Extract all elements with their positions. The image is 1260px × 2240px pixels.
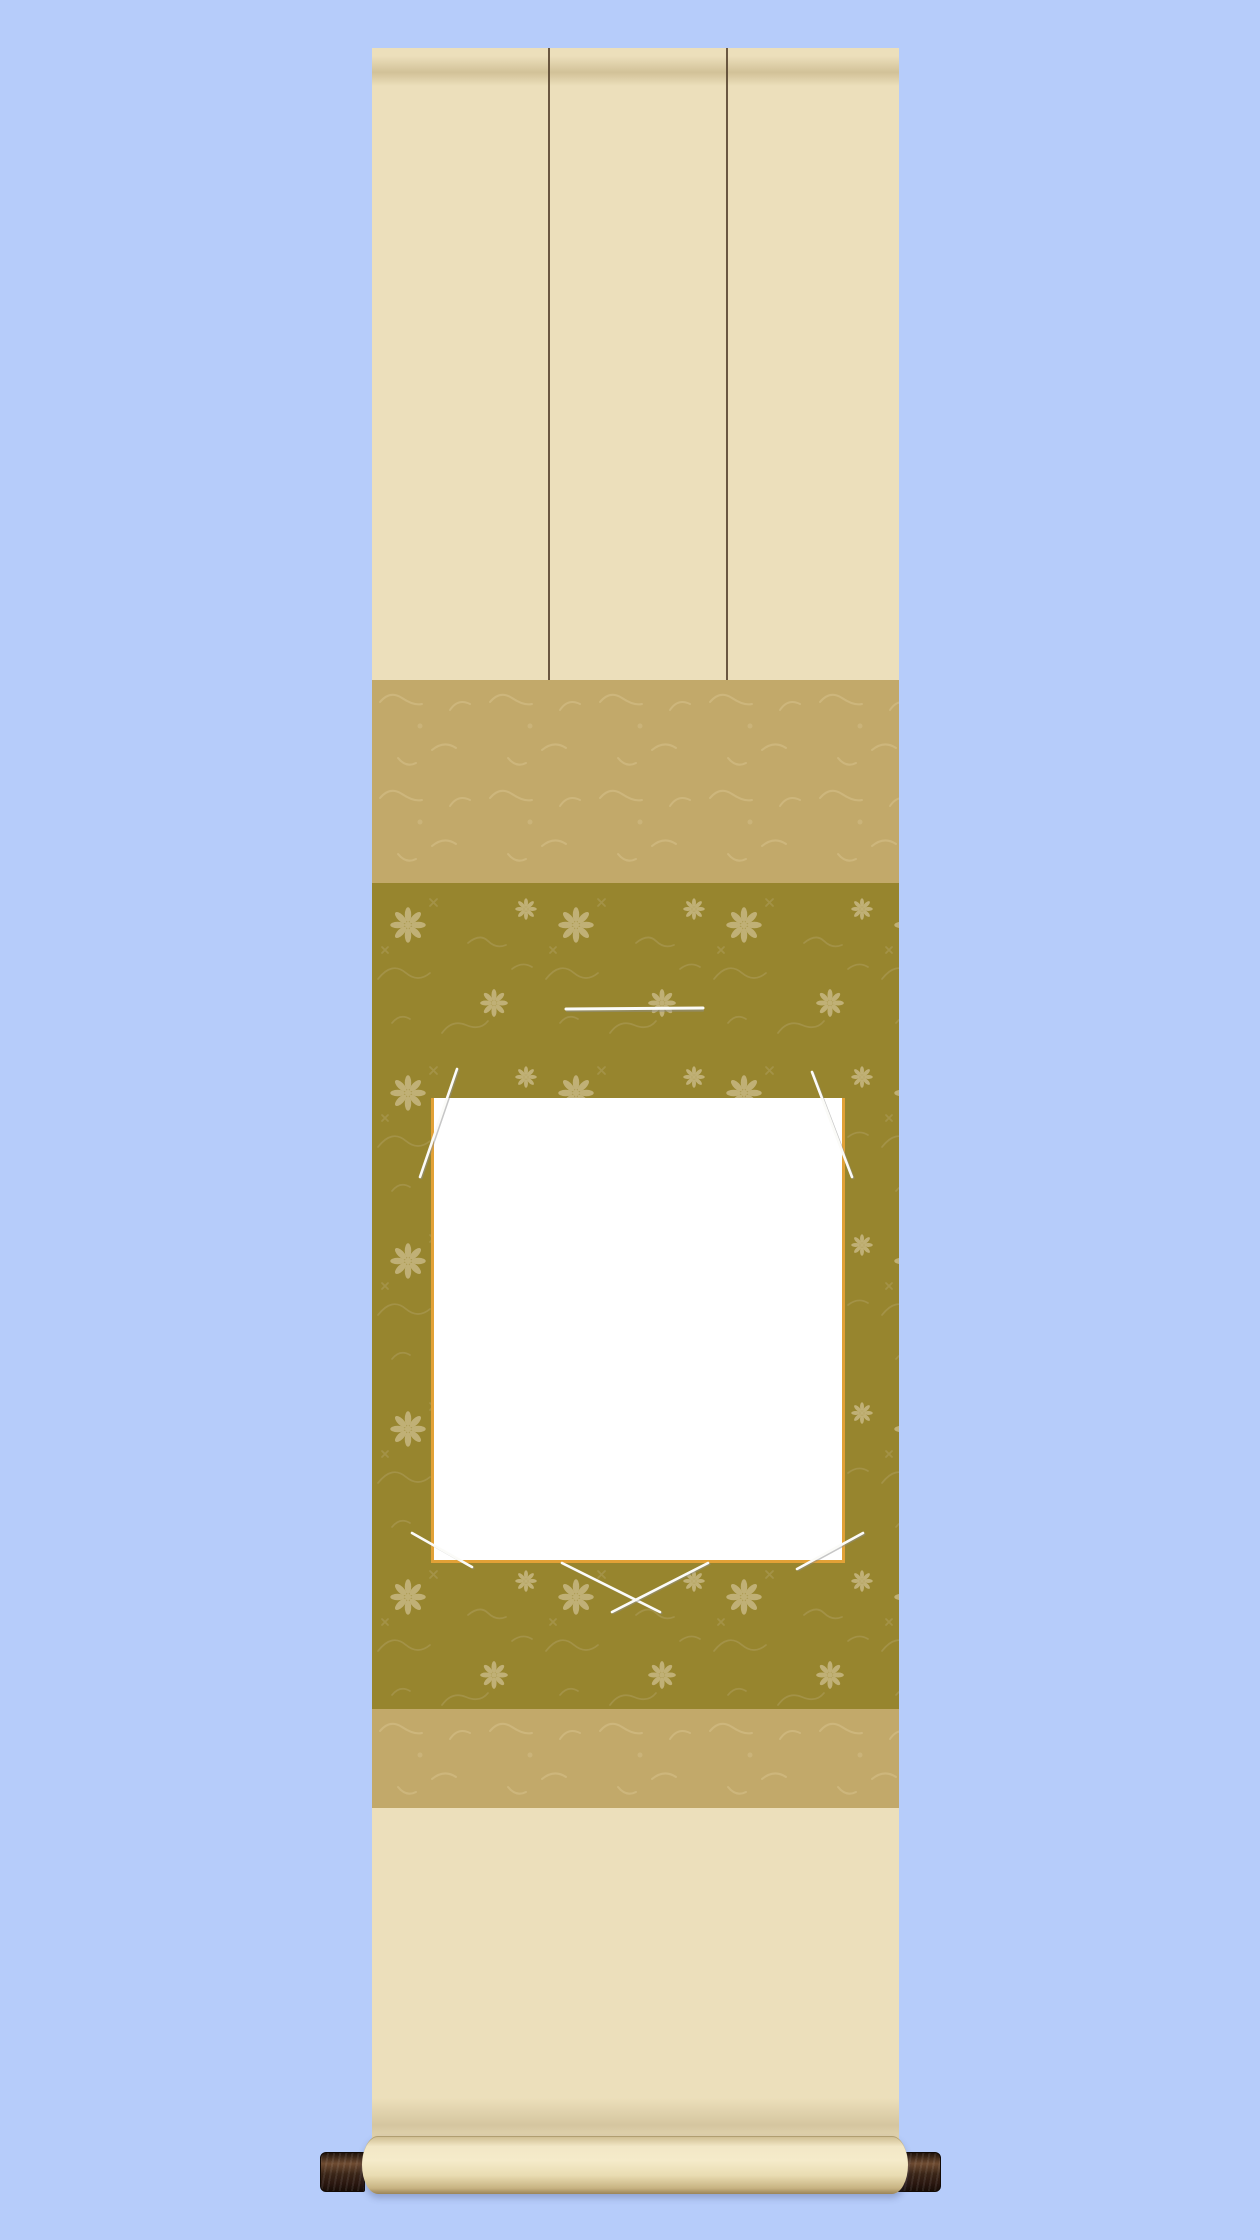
upper-band-texture xyxy=(372,680,899,883)
futai-strip-line-right xyxy=(726,48,728,680)
hanging-rod-shadow xyxy=(372,56,899,86)
scroll-bottom-section xyxy=(372,1808,899,2140)
lower-band-texture xyxy=(372,1709,899,1808)
roll-fold-shading xyxy=(372,2098,899,2140)
futai-strip-line-left xyxy=(548,48,550,680)
shikishi-board xyxy=(431,1098,845,1563)
lower-ichimonji-band xyxy=(372,1709,899,1808)
roller-knob-left xyxy=(320,2152,365,2192)
scroll-top-section xyxy=(372,48,899,680)
product-image xyxy=(0,0,1260,2240)
upper-ichimonji-band xyxy=(372,680,899,883)
page-background: { "scene": { "description": "Product moc… xyxy=(0,0,1260,2240)
roller-cylinder xyxy=(362,2136,908,2194)
hanging-scroll xyxy=(372,48,899,2140)
